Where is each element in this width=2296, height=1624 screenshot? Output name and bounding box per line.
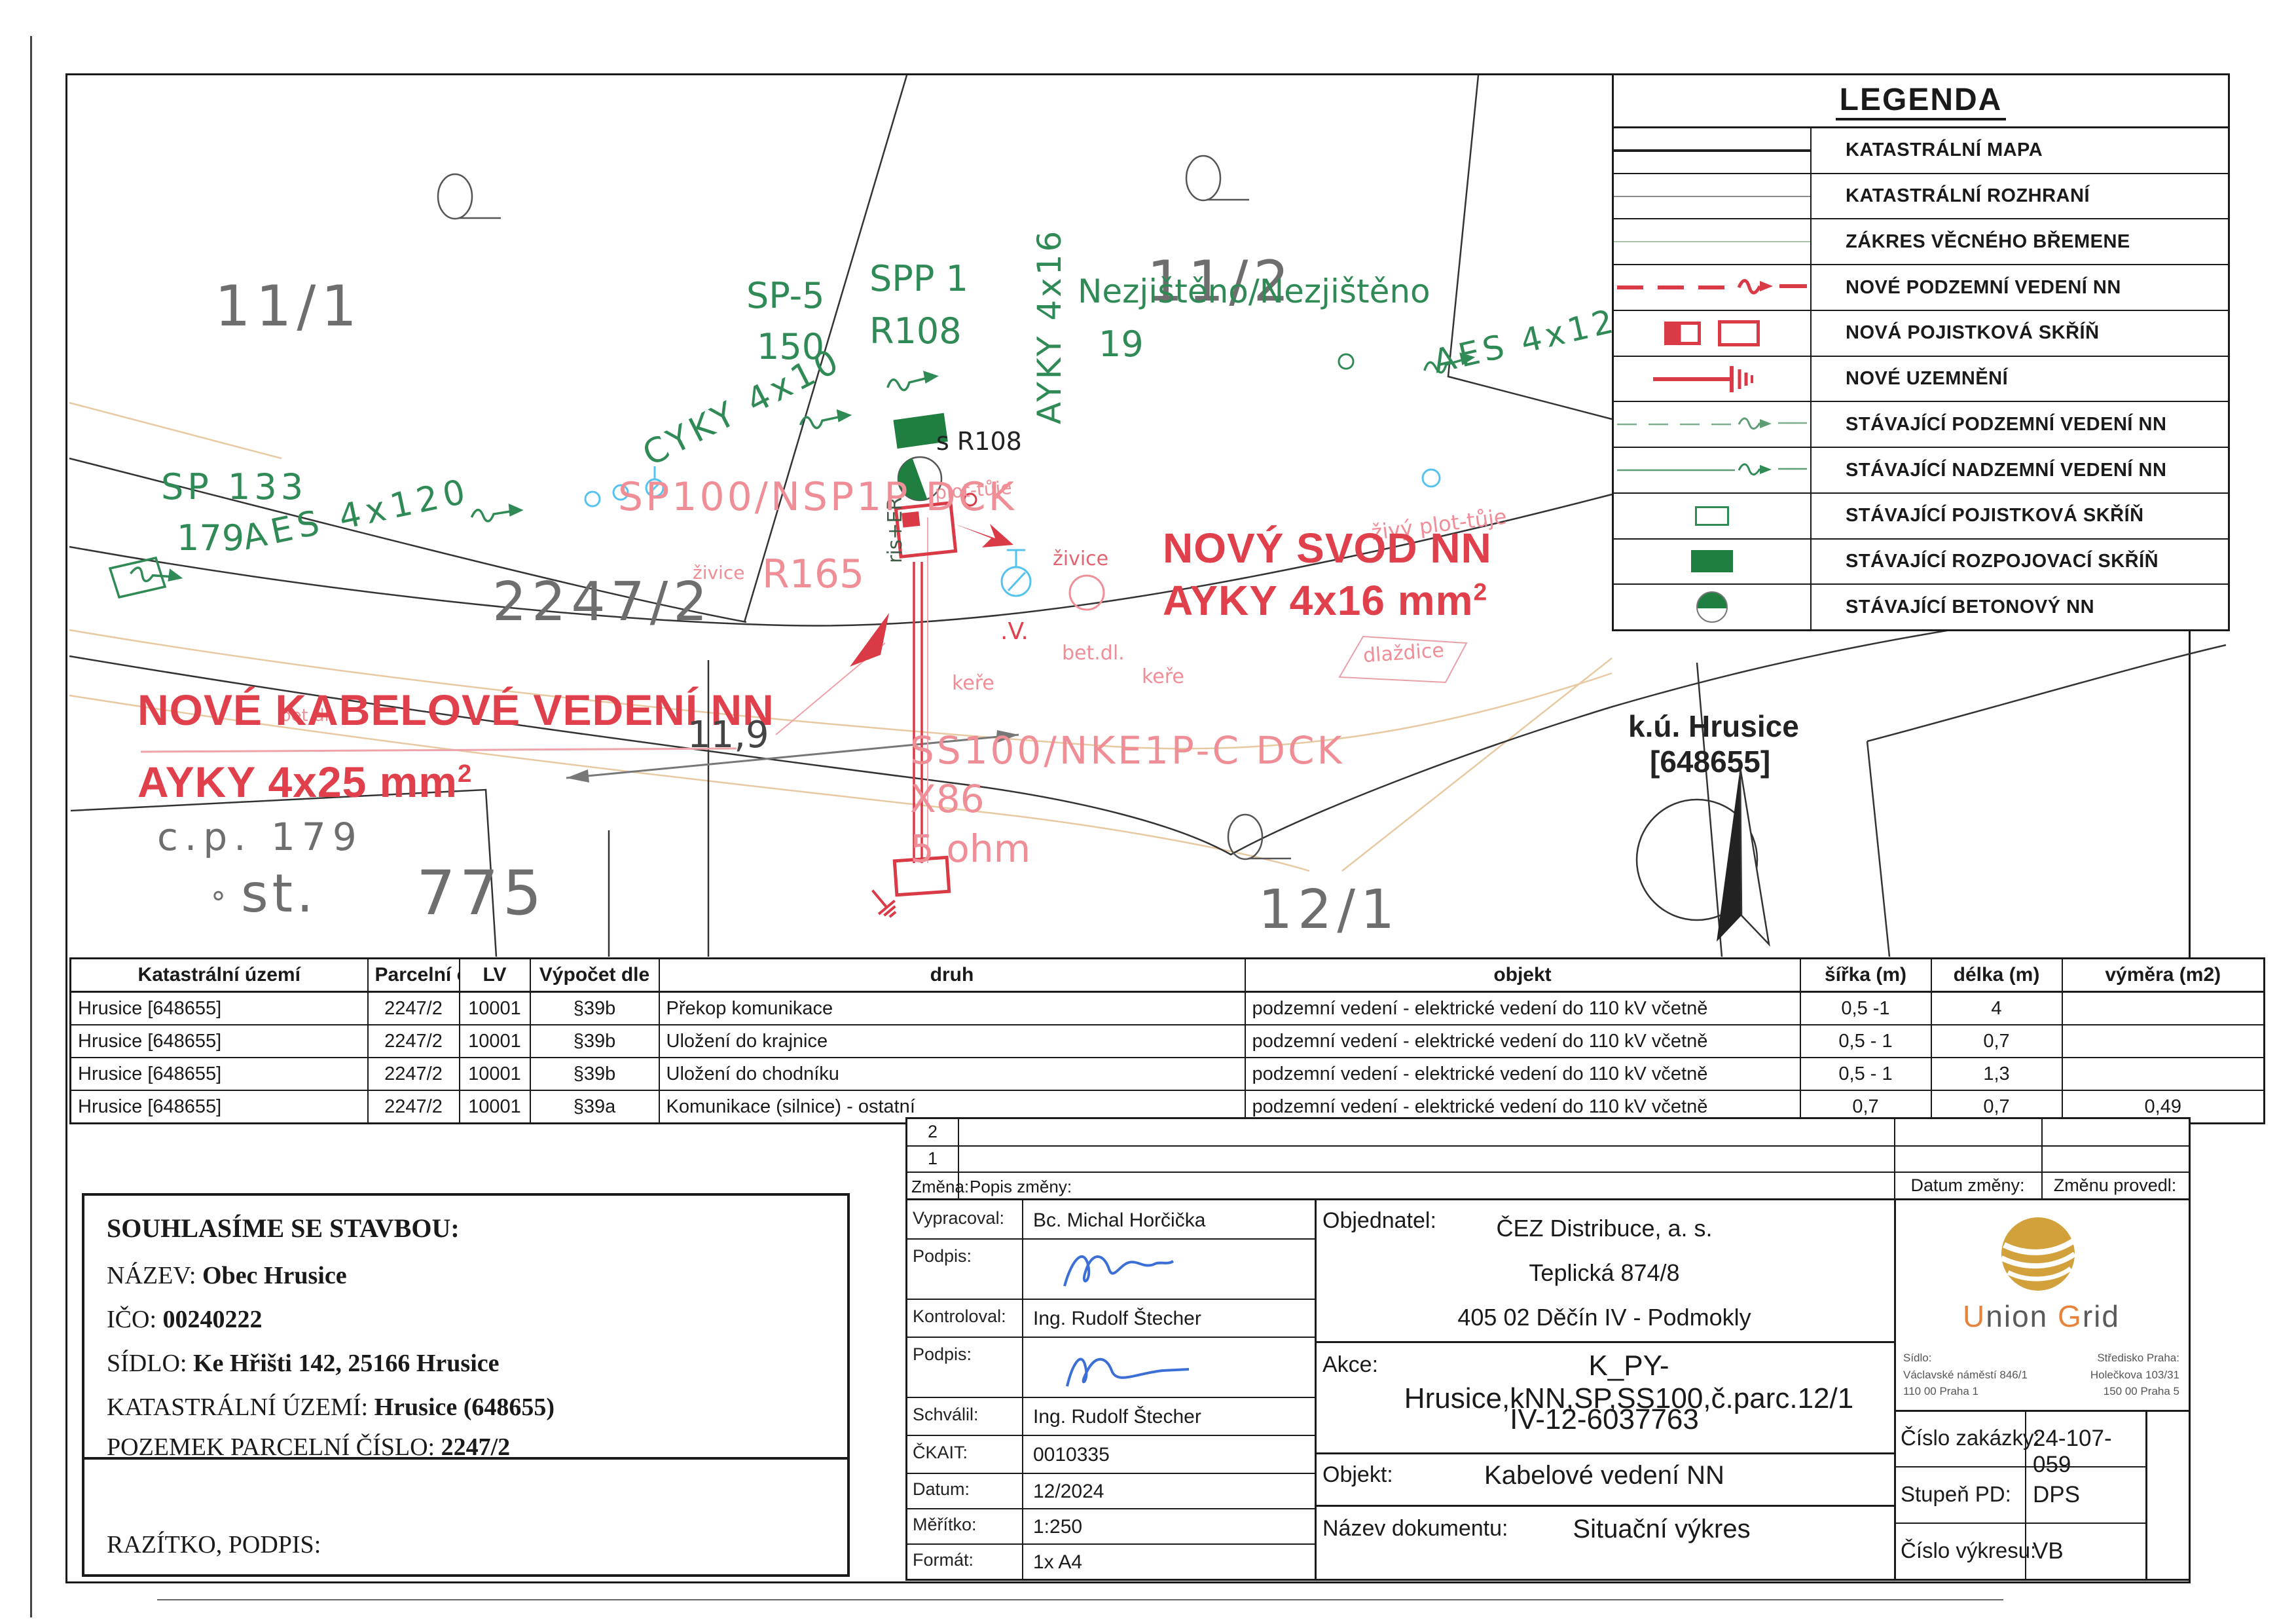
revision-number-1: 1 (907, 1149, 958, 1169)
zakazka-value: 24-107-059 (2033, 1426, 2145, 1478)
cell: 0,5 - 1 (1800, 1025, 1931, 1058)
label-kere-2: keře (1142, 665, 1184, 688)
building-label-775: 775 (416, 858, 545, 929)
cell: 10001 (460, 1058, 530, 1090)
revision-datum-zmeny-label: Datum změny: (1894, 1175, 2041, 1196)
label: KATASTRÁLNÍ ÚZEMÍ: (107, 1393, 368, 1421)
ckait-label: ČKAIT: (913, 1443, 968, 1463)
annotation-ayky4x25: AYKY 4x25 mm2 (137, 757, 472, 807)
consent-box: SOUHLASÍME SE STAVBOU: NÁZEV: Obec Hrusi… (82, 1193, 850, 1462)
table-header-row: Katastrální území Parcelní číslo LV Výpo… (71, 959, 2265, 992)
small-green-circle (1339, 354, 1353, 369)
signature-1 (1058, 1243, 1202, 1295)
cell: Uložení do krajnice (659, 1025, 1245, 1058)
red-underline (141, 748, 737, 752)
podpis-label-2: Podpis: (913, 1344, 972, 1365)
company-address-right: Středisko Praha: Holečkova 103/31 150 00… (2090, 1350, 2179, 1400)
degree-mark: ° (211, 885, 226, 921)
objednatel-line1: ČEZ Distribuce, a. s. (1315, 1215, 1894, 1242)
vypracoval-label: Vypracoval: (913, 1208, 1004, 1228)
stupen-value: DPS (2033, 1482, 2080, 1508)
label-nezjisteno: Nezjištěno/Nezjištěno (1078, 272, 1430, 310)
legend-row: STÁVAJÍCÍ NADZEMNÍ VEDENÍ NN (1614, 448, 2228, 494)
consent-sidlo: SÍDLO: Ke Hřišti 142, 25166 Hrusice (107, 1349, 500, 1378)
legend-row: NOVÉ UZEMNĚNÍ (1614, 357, 2228, 403)
label-v-mark: .V. (1000, 618, 1029, 645)
label: IČO: (107, 1306, 156, 1333)
objednatel-line3: 405 02 Děčín IV - Podmokly (1315, 1304, 1894, 1331)
vykres-label: Číslo výkresu: (1901, 1538, 2036, 1563)
nazev-dok-value: Situační výkres (1432, 1515, 1891, 1544)
label-ayky4x16-vertical: AYKY 4x16 (1030, 229, 1068, 424)
cell: 4 (1931, 992, 2062, 1025)
legend-row: STÁVAJÍCÍ BETONOVÝ NN (1614, 585, 2228, 629)
drawing-sheet: 11/1 11/2 2247/2 12/1 c.p. 179 ° st. 775… (0, 0, 2296, 1624)
cell: §39b (530, 1058, 659, 1090)
stredisko-line2: 150 00 Praha 5 (2090, 1383, 2179, 1400)
legend-title: LEGENDA (1836, 82, 2007, 120)
cell: 2247/2 (368, 992, 460, 1025)
new-grounding-icon (1614, 357, 1812, 401)
building-label-cp179: c.p. 179 (157, 815, 363, 859)
existing-underground-line-icon (1614, 402, 1812, 447)
new-fuse-box-icon (1614, 311, 1812, 356)
value: Obec Hrusice (202, 1262, 347, 1289)
label-r165: R165 (762, 551, 864, 597)
cell: 0,7 (1931, 1025, 2062, 1058)
black-solid-line-icon (1614, 128, 1812, 173)
meritko-label: Měřítko: (913, 1515, 977, 1535)
logo-letter-g: G (2058, 1299, 2083, 1333)
ku-hrusice-line2: [648655] (1650, 744, 1770, 779)
label-spp1: SPP 1 (869, 258, 968, 299)
legend-label: NOVÉ PODZEMNÍ VEDENÍ NN (1812, 265, 2228, 310)
logo-text-1: nion (1986, 1299, 2058, 1333)
label-150: 150 (757, 326, 824, 367)
cell: Hrusice [648655] (71, 992, 368, 1025)
consent-heading: SOUHLASÍME SE STAVBOU: (107, 1213, 460, 1244)
north-compass (1637, 767, 1769, 944)
red-arrowhead (850, 613, 889, 667)
project-column: Objednatel: ČEZ Distribuce, a. s. Teplic… (1315, 1200, 1896, 1579)
cell: 10001 (460, 1025, 530, 1058)
legend-row: KATASTRÁLNÍ MAPA (1614, 128, 2228, 174)
col-katastralni-uzemi: Katastrální území (71, 959, 368, 992)
cell: 2247/2 (368, 1025, 460, 1058)
value: 00240222 (163, 1306, 263, 1333)
revision-table: 2 1 Změna: Popis změny: Datum změny: Změ… (905, 1117, 2191, 1202)
annotation-ayky4x16: AYKY 4x16 mm2 (1163, 576, 1487, 625)
akce-line2: IV-12-6037763 (1315, 1403, 1894, 1436)
legend-label: NOVÉ UZEMNĚNÍ (1812, 357, 2228, 401)
legend-title-row: LEGENDA (1614, 75, 2228, 128)
label: SÍDLO: (107, 1350, 187, 1377)
legend-row: NOVÉ PODZEMNÍ VEDENÍ NN (1614, 265, 2228, 311)
annotation-sup-1: 2 (1474, 578, 1488, 606)
cell (2062, 1025, 2265, 1058)
stamp-label: RAZÍTKO, PODPIS: (107, 1530, 321, 1559)
legend-label: KATASTRÁLNÍ ROZHRANÍ (1812, 174, 2228, 219)
cell: Hrusice [648655] (71, 1025, 368, 1058)
table-row: Hrusice [648655]2247/210001§39bPřekop ko… (71, 992, 2265, 1025)
cell: podzemní vedení - elektrické vedení do 1… (1245, 1025, 1800, 1058)
stredisko-line1: Holečkova 103/31 (2090, 1367, 2179, 1384)
col-vymera: výměra (m2) (2062, 959, 2265, 992)
parcel-label-11-1: 11/1 (215, 274, 362, 339)
datum-label: Datum: (913, 1479, 970, 1500)
cell: §39b (530, 992, 659, 1025)
legend-row: ZÁKRES VĚCNÉHO BŘEMENE (1614, 219, 2228, 265)
kontroloval-value: Ing. Rudolf Štecher (1033, 1308, 1201, 1330)
cell: podzemní vedení - elektrické vedení do 1… (1245, 992, 1800, 1025)
objednatel-line2: Teplická 874/8 (1315, 1259, 1894, 1287)
annotation-nove-kabelove: NOVÉ KABELOVÉ VEDENÍ NN (137, 685, 774, 735)
legend-row: KATASTRÁLNÍ ROZHRANÍ (1614, 174, 2228, 220)
col-druh: druh (659, 959, 1245, 992)
vypracoval-value: Bc. Michal Horčička (1033, 1209, 1205, 1232)
consent-ku: KATASTRÁLNÍ ÚZEMÍ: Hrusice (648655) (107, 1393, 555, 1422)
value: Hrusice (648655) (374, 1393, 555, 1421)
company-cell: Union Grid Sídlo: Václavské náměstí 846/… (1894, 1200, 2189, 1412)
label-sp133: SP 133 (161, 466, 307, 507)
table-row: Hrusice [648655]2247/210001§39bUložení d… (71, 1025, 2265, 1058)
annotation-sup-2: 2 (458, 760, 472, 788)
union-grid-logo-icon (1999, 1215, 2077, 1293)
annotation-novy-svod: NOVÝ SVOD NN (1163, 524, 1492, 572)
cell (2062, 992, 2265, 1025)
label-r108: R108 (869, 310, 962, 352)
label-kere-1: keře (952, 672, 994, 695)
sidlo-line2: 110 00 Praha 1 (1903, 1383, 2028, 1400)
legend-row: NOVÁ POJISTKOVÁ SKŘÍŇ (1614, 311, 2228, 357)
format-value: 1x A4 (1033, 1551, 1082, 1574)
legend-label: STÁVAJÍCÍ BETONOVÝ NN (1812, 585, 2228, 629)
cell: Hrusice [648655] (71, 1058, 368, 1090)
surface-table: Katastrální území Parcelní číslo LV Výpo… (69, 957, 2265, 1124)
col-objekt: objekt (1245, 959, 1800, 992)
signature-2 (1058, 1340, 1228, 1395)
parcel-label-12-1: 12/1 (1258, 879, 1400, 941)
col-delka: délka (m) (1931, 959, 2062, 992)
revision-zmenu-provedl-label: Změnu provedl: (2041, 1175, 2189, 1196)
label-zivice-2: živice (1053, 547, 1108, 570)
cell: §39b (530, 1025, 659, 1058)
table-row: Hrusice [648655]2247/210001§39bUložení d… (71, 1058, 2265, 1090)
stredisko-label: Středisko Praha: (2090, 1350, 2179, 1367)
legend-row: STÁVAJÍCÍ PODZEMNÍ VEDENÍ NN (1614, 402, 2228, 448)
cell: 10001 (460, 1090, 530, 1124)
datum-value: 12/2024 (1033, 1481, 1104, 1503)
logo-letter-u: U (1963, 1299, 1986, 1333)
red-connector-arrow (955, 524, 1013, 547)
legend-row: STÁVAJÍCÍ ROZPOJOVACÍ SKŘÍŇ (1614, 540, 2228, 585)
podpis-label-1: Podpis: (913, 1246, 972, 1266)
revision-zmena-label: Změna: (911, 1177, 969, 1197)
cell: 10001 (460, 992, 530, 1025)
dimension-value: 11,9 (687, 714, 769, 756)
authors-column: Vypracoval: Bc. Michal Horčička Podpis: … (907, 1200, 1317, 1579)
cell: 1,3 (1931, 1058, 2062, 1090)
stupen-label: Stupeň PD: (1901, 1482, 2011, 1507)
meritko-value: 1:250 (1033, 1516, 1082, 1538)
schvalil-label: Schválil: (913, 1405, 979, 1425)
label-ss100: SS100/NKE1P-C DCK (910, 728, 1345, 773)
ckait-value: 0010335 (1033, 1444, 1110, 1466)
logo-text-2: rid (2083, 1299, 2120, 1333)
existing-fuse-box-icon (1614, 494, 1812, 538)
new-underground-line-icon (1614, 265, 1812, 310)
legend-label: NOVÁ POJISTKOVÁ SKŘÍŇ (1812, 311, 2228, 356)
label-s-r108: s R108 (936, 427, 1022, 456)
sidlo-line1: Václavské náměstí 846/1 (1903, 1367, 2028, 1384)
value: Ke Hřišti 142, 25166 Hrusice (193, 1350, 500, 1377)
legend-label: KATASTRÁLNÍ MAPA (1812, 128, 2228, 173)
label-betdl-1: bet.dl. (1062, 642, 1125, 665)
parcel-label-2247-2: 2247/2 (492, 571, 712, 633)
objekt-value: Kabelové vedení NN (1315, 1461, 1894, 1490)
legend-row: STÁVAJÍCÍ POJISTKOVÁ SKŘÍŇ (1614, 494, 2228, 540)
legend: LEGENDA KATASTRÁLNÍ MAPA KATASTRÁLNÍ ROZ… (1612, 73, 2230, 631)
cell: 2247/2 (368, 1090, 460, 1124)
existing-disconnect-box-icon (1614, 540, 1812, 584)
label: NÁZEV: (107, 1262, 196, 1289)
building-label-st: st. (241, 863, 317, 924)
consent-ico: IČO: 00240222 (107, 1305, 263, 1334)
cell (2062, 1058, 2265, 1090)
vykres-value: VB (2033, 1538, 2064, 1564)
label-179: 179 (177, 517, 244, 559)
legend-label: STÁVAJÍCÍ POJISTKOVÁ SKŘÍŇ (1812, 494, 2228, 538)
legend-label: STÁVAJÍCÍ ROZPOJOVACÍ SKŘÍŇ (1812, 540, 2228, 584)
legend-label: ZÁKRES VĚCNÉHO BŘEMENE (1812, 219, 2228, 264)
union-grid-logo-text: Union Grid (1894, 1299, 2189, 1334)
label-5ohm: 5 ohm (910, 826, 1030, 871)
col-vypocet-dle: Výpočet dle (530, 959, 659, 992)
kontroloval-label: Kontroloval: (913, 1306, 1006, 1327)
cell: 0,5 - 1 (1800, 1058, 1931, 1090)
scan-edge-line (30, 36, 32, 1617)
format-label: Formát: (913, 1550, 974, 1570)
sidlo-label: Sídlo: (1903, 1350, 2028, 1367)
col-parcelni-cislo: Parcelní číslo (368, 959, 460, 992)
cell: §39a (530, 1090, 659, 1124)
annotation-ayky4x16-text: AYKY 4x16 mm (1163, 577, 1474, 624)
cell: podzemní vedení - elektrické vedení do 1… (1245, 1058, 1800, 1090)
label-sp5: SP-5 (746, 275, 825, 316)
company-address-left: Sídlo: Václavské náměstí 846/1 110 00 Pr… (1903, 1350, 2028, 1400)
fields-cell: Číslo zakázky: 24-107-059 Stupeň PD: DPS… (1894, 1410, 2147, 1579)
existing-overhead-line-icon (1614, 448, 1812, 492)
legend-label: STÁVAJÍCÍ PODZEMNÍ VEDENÍ NN (1812, 402, 2228, 447)
schvalil-value: Ing. Rudolf Štecher (1033, 1406, 1201, 1428)
ku-hrusice-line1: k.ú. Hrusice (1628, 709, 1799, 744)
revision-number-2: 2 (907, 1122, 958, 1142)
col-sirka: šířka (m) (1800, 959, 1931, 992)
label-19: 19 (1099, 323, 1144, 365)
col-lv: LV (460, 959, 530, 992)
revision-popis-label: Popis změny: (970, 1177, 1072, 1197)
scan-bottom-line (157, 1599, 2003, 1600)
stamp-box: RAZÍTKO, PODPIS: (82, 1457, 850, 1577)
cell: Překop komunikace (659, 992, 1245, 1025)
consent-nazev: NÁZEV: Obec Hrusice (107, 1261, 347, 1290)
existing-fuse-box-symbol (110, 558, 165, 597)
gray-thin-line-icon (1614, 174, 1812, 219)
annotation-ayky4x25-text: AYKY 4x25 mm (137, 758, 458, 806)
easement-line-icon (1614, 219, 1812, 264)
cell: 2247/2 (368, 1058, 460, 1090)
cell: Hrusice [648655] (71, 1090, 368, 1124)
label-x86: X86 (910, 777, 985, 821)
cell: 0,5 -1 (1800, 992, 1931, 1025)
cell: Uložení do chodníku (659, 1058, 1245, 1090)
legend-label: STÁVAJÍCÍ NADZEMNÍ VEDENÍ NN (1812, 448, 2228, 492)
label-zivice-1: živice (693, 562, 744, 583)
existing-concrete-pole-icon (1614, 585, 1812, 629)
zakazka-label: Číslo zakázky: (1901, 1426, 2040, 1450)
title-block: Vypracoval: Bc. Michal Horčička Podpis: … (905, 1198, 2191, 1581)
